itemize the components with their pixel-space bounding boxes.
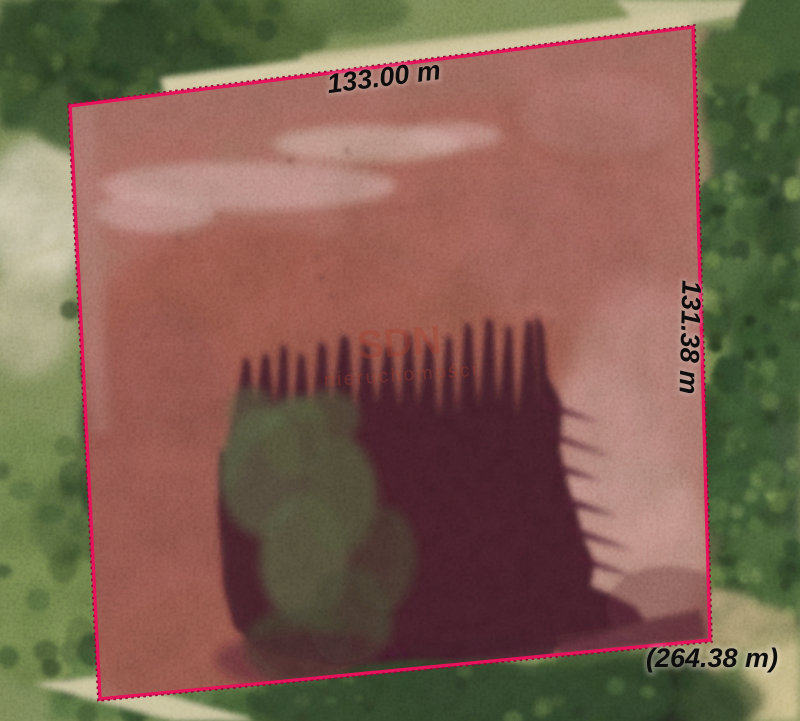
- svg-text:(264.38 m): (264.38 m): [646, 643, 778, 673]
- svg-text:131.38 m: 131.38 m: [674, 280, 707, 395]
- svg-text:SDN: SDN: [355, 318, 442, 368]
